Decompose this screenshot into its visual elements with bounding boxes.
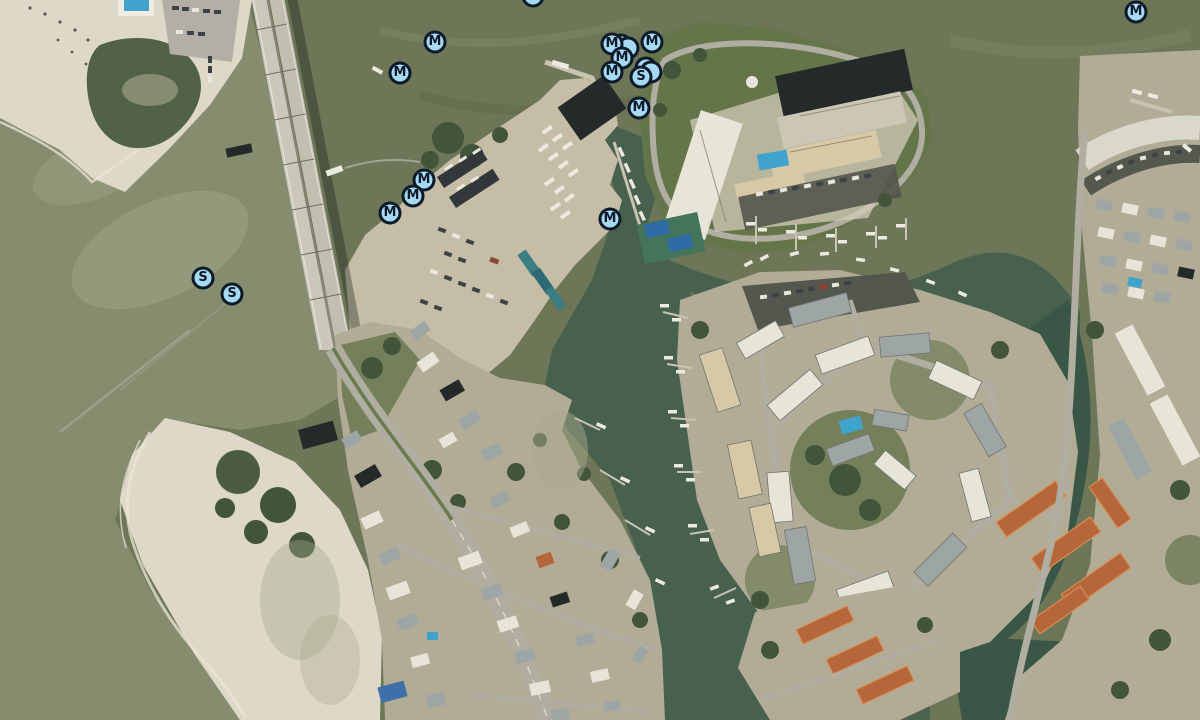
map-marker-M[interactable]: M [599,208,622,231]
map-marker-M[interactable]: M [424,31,447,54]
marker-label: S [198,271,207,284]
marker-label: M [606,65,619,78]
marker-label: M [604,212,617,225]
marker-label: M [646,35,659,48]
marker-label: M [527,0,540,2]
map-marker-S[interactable]: S [192,267,215,290]
marker-label: S [636,70,645,83]
map-marker-M[interactable]: M [641,31,664,54]
marker-label: M [633,101,646,114]
marker-label: M [1130,5,1143,18]
satellite-imagery [0,0,1200,720]
marker-label: M [429,35,442,48]
marker-label: M [407,189,420,202]
map-marker-M[interactable]: M [389,62,412,85]
marker-label: M [384,206,397,219]
marker-label: M [394,66,407,79]
marker-label: S [227,287,236,300]
map-marker-M[interactable]: M [379,202,402,225]
map-marker-S[interactable]: S [221,283,244,306]
marker-label: M [418,173,431,186]
map-canvas[interactable]: MMMMSMMMMMMMMSSM [0,0,1200,720]
map-marker-M[interactable]: M [601,61,624,84]
map-marker-S[interactable]: S [630,66,653,89]
map-marker-M[interactable]: M [1125,1,1148,24]
map-marker-M[interactable]: M [628,97,651,120]
map-marker-M[interactable]: M [402,185,425,208]
